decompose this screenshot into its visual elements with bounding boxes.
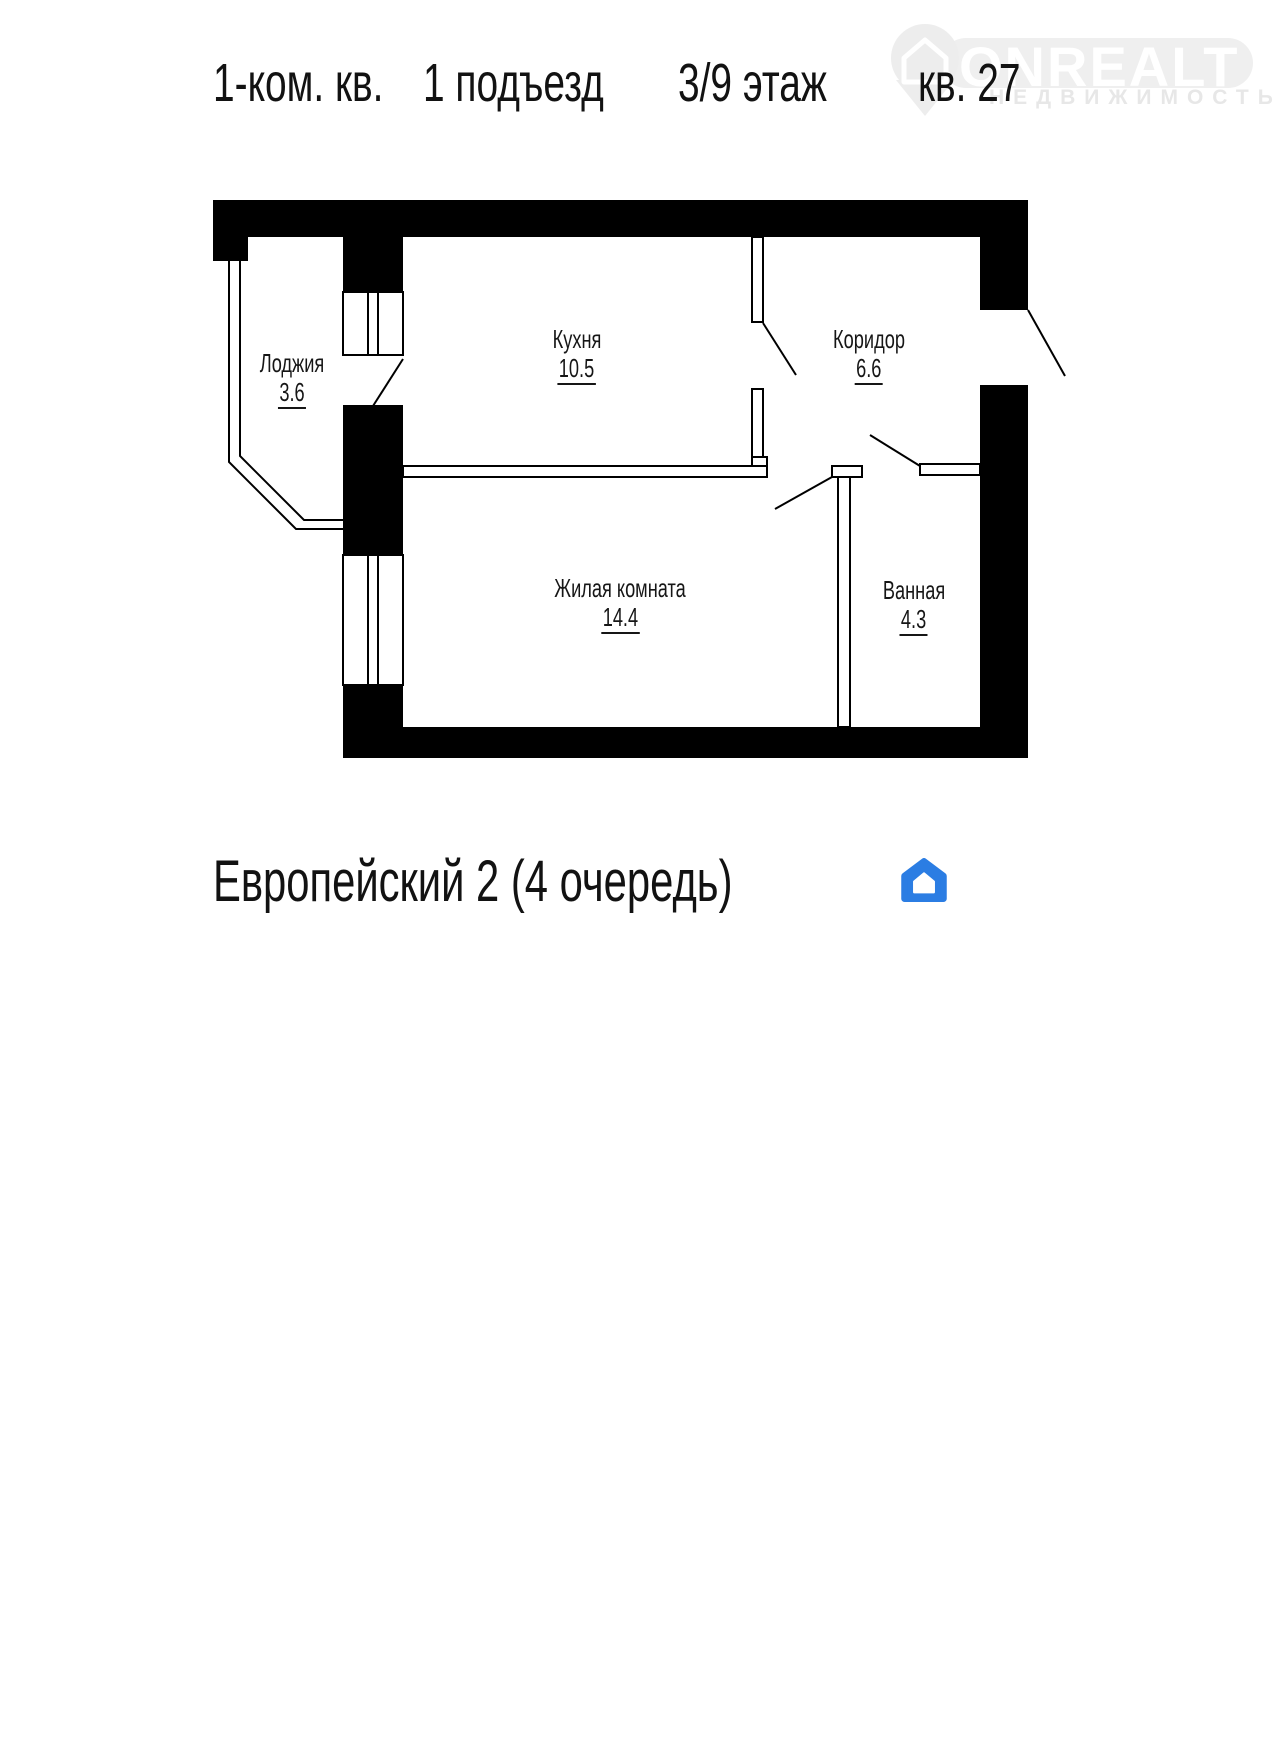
floor-plan-page: { "header": { "part1": "1-ком. кв.", "pa… bbox=[0, 0, 1280, 910]
wall-segment bbox=[403, 727, 1028, 758]
room-name: Коридор bbox=[818, 326, 921, 353]
room-label-loggia: Лоджия 3.6 bbox=[246, 350, 338, 409]
room-area: 3.6 bbox=[246, 379, 338, 409]
room-name: Лоджия bbox=[246, 350, 338, 377]
wall-segment bbox=[213, 200, 248, 261]
house-icon bbox=[898, 856, 950, 904]
room-name: Ванная bbox=[869, 577, 958, 604]
room-area: 4.3 bbox=[869, 606, 958, 636]
wall-segment bbox=[343, 237, 403, 292]
partition-wall bbox=[403, 466, 767, 477]
fsn-logo: ФСН bbox=[898, 850, 1118, 910]
room-label-bathroom: Ванная 4.3 bbox=[869, 577, 958, 636]
window-frame bbox=[343, 292, 403, 355]
wall-segment bbox=[343, 405, 403, 555]
door-swing-line bbox=[1028, 310, 1065, 376]
partition-wall bbox=[752, 457, 767, 466]
door-swing-line bbox=[373, 359, 403, 406]
partition-wall bbox=[838, 477, 850, 727]
room-label-living-room: Жилая комната 14.4 bbox=[526, 575, 714, 634]
partition-wall bbox=[752, 237, 763, 322]
door-swing-line bbox=[763, 323, 796, 375]
project-name: Европейский 2 (4 очередь) bbox=[213, 848, 935, 915]
room-area: 6.6 bbox=[818, 355, 921, 385]
wall-segment bbox=[980, 385, 1028, 758]
partition-wall bbox=[832, 466, 862, 477]
room-area: 10.5 bbox=[542, 355, 612, 385]
door-swing-line bbox=[870, 435, 920, 466]
room-name: Жилая комната bbox=[526, 575, 714, 602]
room-area: 14.4 bbox=[526, 604, 714, 634]
room-label-kitchen: Кухня 10.5 bbox=[542, 326, 612, 385]
wall-segment bbox=[980, 237, 1028, 310]
wall-segment bbox=[213, 200, 1028, 237]
partition-wall bbox=[752, 389, 763, 466]
floor-plan-drawing bbox=[0, 0, 1280, 910]
room-name: Кухня bbox=[542, 326, 612, 353]
wall-segment bbox=[343, 685, 403, 758]
partition-wall bbox=[920, 464, 980, 475]
window-frame bbox=[343, 555, 403, 685]
door-swing-line bbox=[775, 477, 832, 509]
room-label-corridor: Коридор 6.6 bbox=[818, 326, 921, 385]
